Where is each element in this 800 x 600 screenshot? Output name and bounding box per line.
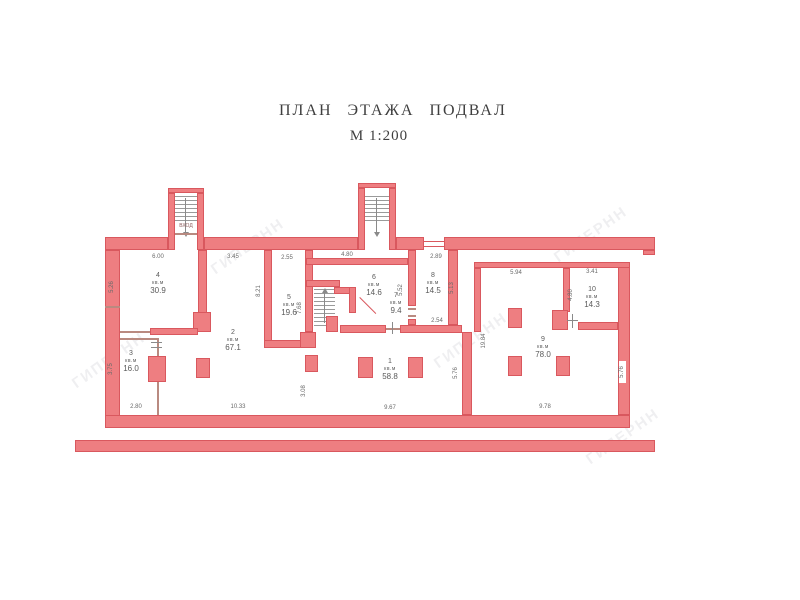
room-label-3: 3 кв.м 16.0 bbox=[109, 350, 153, 374]
wall-segment bbox=[306, 258, 408, 265]
page-title: ПЛАН ЭТАЖА ПОДВАЛ bbox=[279, 102, 479, 120]
column bbox=[508, 308, 522, 328]
wall-segment bbox=[643, 250, 655, 255]
wall-thin-line bbox=[120, 338, 157, 340]
dimension-label: 5.26 bbox=[108, 270, 116, 304]
stair-treads bbox=[365, 196, 389, 222]
room-number: 9 bbox=[521, 336, 565, 344]
column bbox=[196, 358, 210, 378]
room-area: 30.9 bbox=[136, 286, 180, 296]
dimension-label: 3.75 bbox=[107, 352, 115, 386]
stair-arrow-up-icon bbox=[322, 288, 328, 293]
dimension-label: 3.41 bbox=[575, 268, 609, 276]
stair-shaft-wall bbox=[168, 193, 175, 250]
wall-segment bbox=[462, 332, 472, 415]
wall-segment bbox=[198, 250, 207, 314]
wall-segment bbox=[578, 322, 618, 330]
door-tick bbox=[572, 314, 573, 328]
room-area: 16.0 bbox=[109, 364, 153, 374]
floor-plan-page: ПЛАН ЭТАЖА ПОДВАЛ М 1:200 ГИПЕРНН ГИПЕРН… bbox=[0, 0, 800, 600]
room-label-5: 5 кв.м 19.6 bbox=[267, 294, 311, 318]
room-label-10: 10 кв.м 14.3 bbox=[570, 286, 614, 310]
stair-direction-line bbox=[376, 198, 377, 232]
room-number: 10 bbox=[570, 286, 614, 294]
dimension-label: 5.94 bbox=[499, 269, 533, 277]
wall-segment bbox=[552, 310, 568, 330]
door-tick bbox=[392, 322, 393, 334]
door-opening-line bbox=[424, 241, 444, 242]
scale-label: М 1:200 bbox=[279, 128, 479, 145]
door-opening bbox=[424, 238, 444, 249]
stair-shaft-wall bbox=[358, 188, 365, 250]
room-label-9: 9 кв.м 78.0 bbox=[521, 336, 565, 360]
door-opening-line bbox=[386, 328, 400, 330]
dimension-label: 9.67 bbox=[373, 404, 407, 412]
dimension-label: 10.33 bbox=[221, 403, 255, 411]
door-tick bbox=[567, 320, 578, 321]
room-number: 6 bbox=[352, 274, 396, 282]
window-tick bbox=[105, 306, 120, 308]
room-number: 5 bbox=[267, 294, 311, 302]
wall-segment bbox=[300, 332, 316, 348]
wall-segment bbox=[204, 237, 358, 250]
dimension-label: 3.08 bbox=[300, 374, 308, 408]
wall-segment bbox=[150, 328, 198, 335]
dimension-label: 7.68 bbox=[296, 291, 304, 325]
room-area: 9.4 bbox=[374, 306, 418, 316]
column bbox=[326, 316, 338, 332]
room-number: 1 bbox=[368, 358, 412, 366]
wall-segment bbox=[618, 262, 630, 415]
dimension-label: 2.55 bbox=[270, 254, 304, 262]
dimension-label: 9.78 bbox=[528, 403, 562, 411]
stair-direction-line bbox=[324, 293, 325, 323]
door-opening-line bbox=[120, 331, 150, 333]
dimension-label: 4.80 bbox=[330, 251, 364, 259]
wall-segment bbox=[105, 237, 168, 250]
room-number: 3 bbox=[109, 350, 153, 358]
stair-treads bbox=[175, 196, 197, 222]
dimension-label: 19.84 bbox=[480, 324, 488, 358]
wall-segment bbox=[474, 268, 481, 332]
wall-segment bbox=[400, 325, 462, 333]
room-area: 19.6 bbox=[267, 308, 311, 318]
stair-arrow-down-icon bbox=[374, 232, 380, 237]
wall-segment bbox=[408, 319, 416, 325]
dimension-label: 5.13 bbox=[448, 271, 456, 305]
dimension-label: 2.54 bbox=[420, 317, 454, 325]
room-area: 67.1 bbox=[211, 343, 255, 353]
room-number: 4 bbox=[136, 272, 180, 280]
stair-shaft-wall bbox=[197, 193, 204, 250]
stair-shaft-wall bbox=[389, 188, 396, 250]
column bbox=[508, 356, 522, 376]
dimension-label: 5.52 bbox=[397, 273, 405, 307]
dimension-label: 4.80 bbox=[567, 278, 575, 312]
dimension-label: 8.21 bbox=[255, 274, 263, 308]
door-opening-line bbox=[424, 246, 444, 247]
wall-segment bbox=[396, 237, 424, 250]
dimension-label: 3.45 bbox=[216, 253, 250, 261]
room-number: 2 bbox=[211, 329, 255, 337]
door-threshold-line bbox=[175, 233, 197, 235]
room-label-4: 4 кв.м 30.9 bbox=[136, 272, 180, 296]
room-area: 58.8 bbox=[368, 372, 412, 382]
room-label-2: 2 кв.м 67.1 bbox=[211, 329, 255, 353]
wall-segment bbox=[306, 280, 340, 287]
room-area: 14.3 bbox=[570, 300, 614, 310]
wall-segment bbox=[105, 415, 630, 428]
entrance-label: ВХОД bbox=[175, 223, 197, 229]
dimension-label: 2.80 bbox=[119, 403, 153, 411]
dimension-label: 5.76 bbox=[452, 356, 460, 390]
door-tick bbox=[151, 342, 162, 343]
column bbox=[305, 355, 318, 372]
drawing-title-block: ПЛАН ЭТАЖА ПОДВАЛ М 1:200 bbox=[279, 102, 479, 145]
room-label-1: 1 кв.м 58.8 bbox=[368, 358, 412, 382]
room-area: 78.0 bbox=[521, 350, 565, 360]
wall-segment bbox=[444, 237, 655, 250]
dimension-label: 2.89 bbox=[419, 253, 453, 261]
door-tick bbox=[151, 347, 162, 348]
watermark: ГИПЕРНН bbox=[551, 203, 631, 266]
wall-segment bbox=[340, 325, 386, 333]
dimension-label: 6.00 bbox=[141, 253, 175, 261]
site-boundary-bar bbox=[75, 440, 655, 452]
dimension-label: 5.76 bbox=[618, 355, 626, 389]
